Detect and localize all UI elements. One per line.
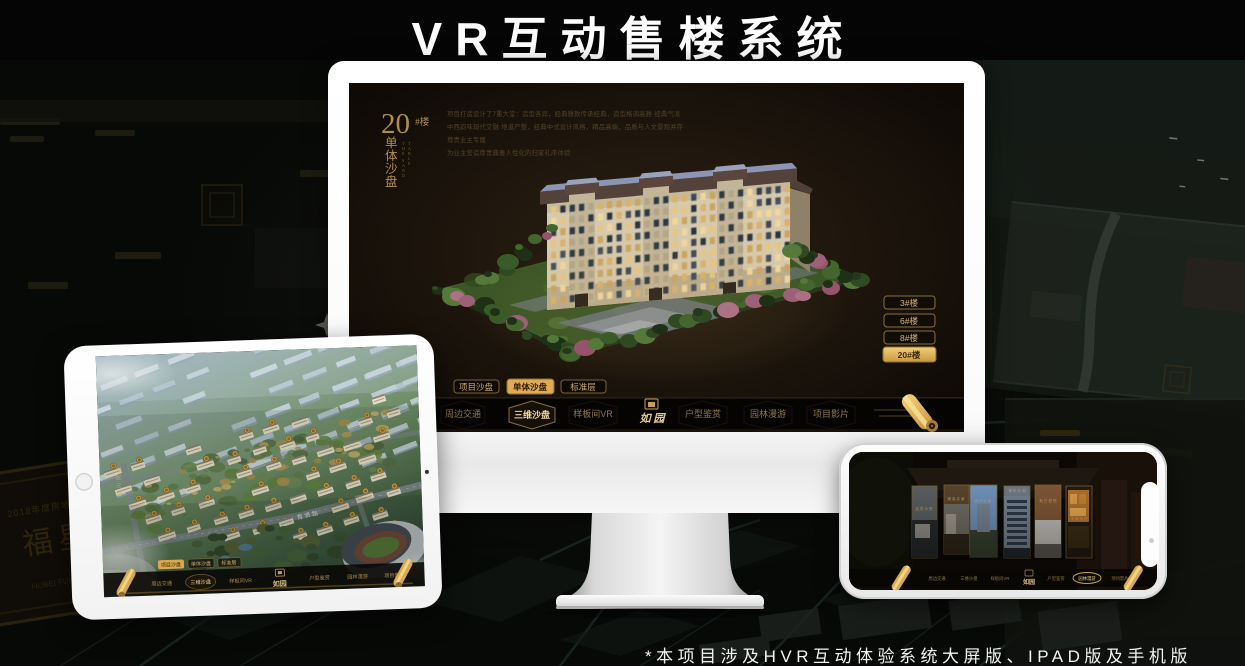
svg-text:区: 区 <box>116 475 122 482</box>
svg-text:项目打造设计了7重大堂：造型各异，经典雅致传承经典，造型格调: 项目打造设计了7重大堂：造型各异，经典雅致传承经典，造型格调高雅·经典气派 <box>447 109 681 118</box>
svg-text:3#楼: 3#楼 <box>900 298 918 308</box>
svg-text:体: 体 <box>385 149 398 163</box>
svg-text:户型鉴赏: 户型鉴赏 <box>685 408 721 419</box>
svg-text:8#楼: 8#楼 <box>900 333 918 343</box>
svg-text:项目沙盘: 项目沙盘 <box>161 561 181 569</box>
svg-text:盘: 盘 <box>385 174 398 189</box>
svg-text:项目沙盘: 项目沙盘 <box>459 382 494 392</box>
svg-text:单体沙盘: 单体沙盘 <box>513 382 548 392</box>
svg-text:周边交通: 周边交通 <box>445 408 481 419</box>
svg-text:为业主营造尊贵典雅人性化的归家礼序体验: 为业主营造尊贵典雅人性化的归家礼序体验 <box>447 148 571 157</box>
svg-text:6#楼: 6#楼 <box>900 316 918 326</box>
svg-text:样板间VR: 样板间VR <box>573 408 613 419</box>
svg-text:路: 路 <box>116 490 122 498</box>
svg-text:D: D <box>402 173 405 178</box>
svg-text:三: 三 <box>116 483 122 490</box>
svg-text:单体沙盘: 单体沙盘 <box>191 560 211 568</box>
svg-text:三维沙盘: 三维沙盘 <box>960 575 978 582</box>
svg-text:20#楼: 20#楼 <box>898 350 921 360</box>
svg-text:三维沙盘: 三维沙盘 <box>514 409 550 420</box>
svg-text:尊贵业主专属: 尊贵业主专属 <box>447 135 486 144</box>
svg-text:样板间VR: 样板间VR <box>991 575 1010 582</box>
svg-text:园林漫游: 园林漫游 <box>750 408 786 419</box>
svg-text:#楼: #楼 <box>415 116 430 128</box>
svg-text:周边交通: 周边交通 <box>928 575 946 582</box>
svg-text:单: 单 <box>385 136 398 150</box>
svg-text:项目影片: 项目影片 <box>1111 575 1128 582</box>
svg-text:如园: 如园 <box>1023 578 1035 586</box>
svg-text:标准层: 标准层 <box>570 382 596 392</box>
svg-text:项目影片: 项目影片 <box>813 408 849 419</box>
svg-text:如园: 如园 <box>273 579 287 588</box>
svg-text:标准层: 标准层 <box>221 559 236 567</box>
svg-text:如 园: 如 园 <box>640 412 667 425</box>
svg-text:园林漫游: 园林漫游 <box>1078 575 1096 582</box>
svg-text:户型鉴赏: 户型鉴赏 <box>1047 575 1065 582</box>
svg-text:中西韵味现代交融·地道严整，经典中式设计风格，精品高端，品质: 中西韵味现代交融·地道严整，经典中式设计风格，精品高端，品质与人文景观并存· <box>447 122 685 131</box>
svg-text:园: 园 <box>116 467 122 474</box>
svg-text:沙: 沙 <box>385 162 398 176</box>
